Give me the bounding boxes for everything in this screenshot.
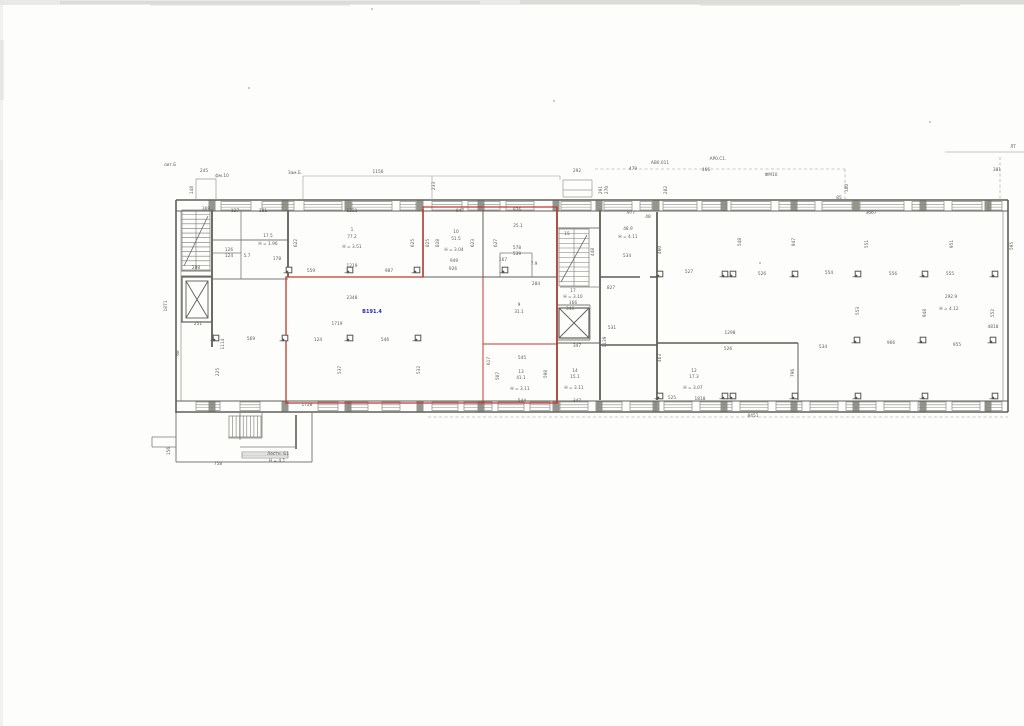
plan-label: 532 — [416, 366, 422, 374]
wall-pier — [596, 201, 603, 211]
plan-label: 555 — [946, 271, 954, 277]
plan-label: Н = 3.07 — [683, 385, 702, 391]
plan-label: 124 — [314, 337, 322, 343]
plan-label: 553 — [855, 307, 861, 315]
wall-pier — [478, 201, 485, 211]
plan-label: 828 — [435, 239, 441, 247]
plan-label: 825 — [425, 239, 431, 247]
plan-label: 527 — [685, 269, 693, 275]
floor-plan-svg: лит.Б245фм.10148Зам.Б.115623329229127047… — [0, 0, 1024, 726]
unit-area-label: В191.4 — [362, 309, 382, 315]
plan-label: 2348 — [347, 295, 358, 301]
plan-label: 466 — [702, 167, 710, 173]
wall-pier — [985, 402, 992, 412]
window-symbol — [663, 202, 697, 211]
plan-label: 463 — [657, 354, 663, 362]
plan-label: 292.9 — [945, 294, 958, 300]
wall-pier — [853, 201, 860, 211]
plan-label: 31.1 — [514, 309, 524, 315]
plan-label: 578 — [513, 245, 521, 251]
plan-label: 156 — [166, 447, 172, 455]
plan-label: 947 — [456, 208, 464, 214]
plan-label: 225 — [215, 368, 221, 376]
plan-label: 85 — [836, 195, 842, 201]
window-symbol — [400, 202, 416, 211]
plan-label: Н = 4.12 — [939, 306, 958, 312]
plan-label: Лестн. Б1 — [267, 451, 289, 457]
plan-label: 15 — [564, 231, 570, 237]
plan-label: Н = 1.96 — [258, 241, 277, 247]
plan-label: 987 — [385, 268, 393, 274]
plan-label: 5.7 — [244, 253, 251, 259]
plan-label: 12 — [691, 368, 697, 374]
wall-pier — [653, 402, 660, 412]
plan-label: лит.Б — [164, 162, 176, 168]
window-symbol — [912, 202, 944, 211]
plan-label: 526 — [724, 346, 732, 352]
plan-label: 17.3 — [689, 374, 699, 380]
plan-label: 622 — [293, 239, 299, 247]
plan-label: 15.1 — [570, 374, 580, 380]
plan-label: ЛТ — [1010, 144, 1016, 150]
scan-speck — [759, 262, 761, 264]
plan-label: Н = 4,1 — [269, 458, 286, 464]
plan-label: 569 — [247, 336, 255, 342]
plan-label: 9 — [518, 302, 521, 308]
plan-label: 796 — [790, 369, 796, 377]
plan-label: 1871 — [163, 300, 169, 311]
plan-label: 126 — [225, 247, 233, 253]
window-symbol — [860, 202, 904, 211]
plan-label: 369 — [202, 206, 210, 212]
plan-label: 17.5 — [263, 233, 273, 239]
plan-label: 556 — [889, 271, 897, 277]
plan-label: АВ0.011 — [651, 160, 669, 166]
plan-label: 947 — [791, 238, 797, 246]
plan-label: 8451 — [748, 413, 759, 419]
plan-label: 955 — [953, 342, 961, 348]
window-symbol — [630, 402, 656, 411]
plan-label: 977 — [627, 210, 635, 216]
plan-label: Н = 3.11 — [564, 385, 583, 391]
plan-label: 623 — [470, 239, 476, 247]
window-symbol — [822, 202, 852, 211]
scan-speck — [248, 87, 250, 89]
plan-label: 1 — [351, 227, 354, 233]
wall-pier — [791, 201, 798, 211]
plan-label: 544 — [518, 398, 526, 404]
plan-label: 548 — [737, 238, 743, 246]
scan-speck — [929, 121, 931, 123]
plan-label: 1139 — [602, 336, 608, 347]
floor-plan-drawing: лит.Б245фм.10148Зам.Б.115623329229127047… — [0, 0, 1024, 726]
plan-label: Н = 4.11 — [618, 234, 637, 240]
wall-pier — [853, 402, 860, 412]
plan-label: 41.1 — [516, 375, 526, 381]
plan-label: 539 — [513, 251, 521, 257]
plan-label: 448 — [590, 248, 596, 256]
plan-label: 758 — [214, 461, 222, 467]
scanned-floor-plan-page: лит.Б245фм.10148Зам.Б.115623329229127047… — [0, 0, 1024, 726]
plan-label: 526 — [758, 271, 766, 277]
plan-label: 552 — [990, 309, 996, 317]
window-symbol — [952, 402, 980, 411]
window-symbol — [304, 202, 342, 211]
window-symbol — [884, 402, 910, 411]
scan-speck — [371, 8, 373, 10]
plan-label: 546 — [381, 337, 389, 343]
plan-label: Н = 3.51 — [342, 244, 361, 250]
plan-label: 270 — [604, 186, 610, 194]
wall-pier — [653, 201, 660, 211]
wall-pier — [920, 402, 927, 412]
plan-label: 951 — [949, 240, 955, 248]
window-symbol — [952, 202, 982, 211]
plan-label: 14 — [572, 368, 578, 374]
plan-label: Зам.Б. — [288, 170, 302, 176]
plan-label: 926 — [449, 266, 457, 272]
plan-label: 288 — [192, 265, 200, 271]
plan-label: Н = 3.11 — [510, 386, 529, 392]
plan-label: фм.10 — [215, 173, 229, 179]
plan-label: 245 — [200, 168, 208, 174]
plan-label: 531 — [608, 325, 616, 331]
paper-background — [0, 0, 1024, 726]
plan-label: 347 — [573, 343, 581, 349]
window-symbol — [776, 402, 802, 411]
wall-pier — [920, 201, 927, 211]
plan-label: 1114 — [220, 338, 226, 349]
plan-label: 178 — [273, 256, 281, 262]
scan-speck — [553, 100, 555, 102]
window-symbol — [352, 202, 392, 211]
plan-label: Н = 3.10 — [563, 294, 582, 300]
plan-label: 51.5 — [451, 236, 461, 242]
plan-label: Н = 3.04 — [444, 247, 463, 253]
plan-label: ФМ10 — [765, 172, 778, 178]
plan-label: 292 — [573, 168, 581, 174]
window-symbol — [810, 402, 838, 411]
window-symbol — [731, 202, 771, 211]
plan-label: 68 — [175, 350, 181, 356]
plan-label: 625 — [410, 239, 416, 247]
plan-label: 346 — [566, 306, 574, 312]
plan-label: 166 — [569, 300, 577, 306]
plan-label: 559 — [307, 268, 315, 274]
plan-label: 148 — [189, 186, 195, 194]
window-symbol — [846, 402, 876, 411]
plan-label: 381 — [993, 167, 1001, 173]
plan-label: 1298 — [725, 330, 736, 336]
plan-label: 1156 — [373, 169, 384, 175]
window-symbol — [640, 202, 652, 211]
plan-label: 525 — [668, 395, 676, 401]
plan-label: 381 — [259, 208, 267, 214]
plan-label: 10 — [453, 229, 459, 235]
plan-label: 1818 — [695, 396, 706, 402]
plan-label: 595 — [1009, 242, 1015, 250]
plan-label: 949 — [450, 258, 458, 264]
plan-label: 545 — [518, 355, 526, 361]
plan-label: 460 — [657, 246, 663, 254]
plan-label: 124 — [225, 253, 233, 259]
plan-label: 251 — [194, 321, 202, 327]
wall-pier — [791, 402, 798, 412]
plan-label: 554 — [825, 270, 833, 276]
window-symbol — [740, 402, 768, 411]
plan-label: 48 — [645, 214, 651, 220]
wall-pier — [985, 201, 992, 211]
plan-label: 827 — [607, 285, 615, 291]
plan-label: 127 — [231, 208, 239, 214]
plan-label: 627 — [493, 239, 499, 247]
plan-label: 180 — [844, 184, 850, 192]
plan-label: 1719 — [332, 321, 343, 327]
wall-pier — [596, 402, 603, 412]
wall-pier — [209, 402, 216, 412]
window-symbol — [664, 402, 692, 411]
plan-label: 479 — [629, 166, 637, 172]
plan-label: 1221 — [347, 208, 358, 214]
plan-label: 534 — [623, 253, 631, 259]
wall-pier — [721, 402, 728, 412]
plan-label: 3667 — [866, 210, 877, 216]
plan-label: 7.9 — [531, 261, 538, 267]
plan-label: 233 — [431, 182, 437, 190]
plan-label: 13 — [518, 369, 524, 375]
plan-label: 598 — [543, 370, 549, 378]
plan-label: 291 — [598, 186, 604, 194]
window-symbol — [240, 402, 260, 411]
plan-label: 507 — [495, 372, 501, 380]
window-symbol — [196, 402, 220, 411]
plan-label: 551 — [864, 240, 870, 248]
plan-label: 77.2 — [347, 234, 357, 240]
plan-label: 284 — [532, 281, 540, 287]
plan-label: 1728 — [302, 402, 313, 408]
plan-label: 617 — [486, 357, 492, 365]
plan-label: 534 — [819, 344, 827, 350]
plan-label: 25.1 — [513, 223, 523, 229]
plan-label: 966 — [887, 340, 895, 346]
plan-label: 17 — [570, 288, 576, 294]
window-symbol — [561, 202, 591, 211]
wall-pier — [553, 201, 560, 211]
plan-label: 282 — [663, 186, 669, 194]
plan-label: 1219 — [347, 263, 358, 269]
plan-label: 48.9 — [623, 226, 633, 232]
wall-pier — [721, 201, 728, 211]
plan-label: АР0.С1. — [710, 156, 727, 162]
plan-label: 167 — [499, 257, 507, 263]
wall-pier — [282, 201, 289, 211]
plan-label: 537 — [337, 366, 343, 374]
plan-label: 4818 — [988, 324, 999, 330]
window-symbol — [604, 202, 632, 211]
plan-label: 976 — [513, 207, 521, 213]
plan-label: 347 — [573, 398, 581, 404]
plan-label: 948 — [922, 309, 928, 317]
